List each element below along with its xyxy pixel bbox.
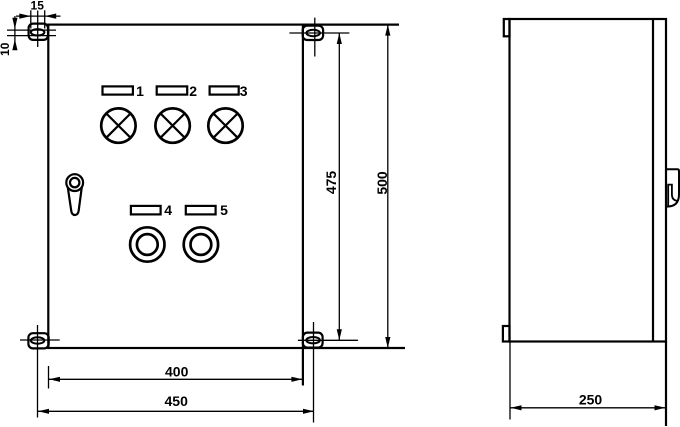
- svg-text:4: 4: [164, 202, 172, 218]
- svg-text:15: 15: [31, 0, 45, 13]
- svg-text:2: 2: [189, 83, 197, 99]
- svg-text:400: 400: [165, 363, 189, 379]
- svg-text:1: 1: [136, 83, 144, 99]
- svg-text:3: 3: [240, 83, 248, 99]
- svg-text:10: 10: [0, 42, 12, 56]
- svg-text:450: 450: [165, 393, 189, 409]
- svg-text:500: 500: [374, 171, 390, 195]
- svg-text:475: 475: [323, 171, 339, 195]
- svg-text:5: 5: [220, 202, 228, 218]
- svg-text:250: 250: [579, 391, 603, 407]
